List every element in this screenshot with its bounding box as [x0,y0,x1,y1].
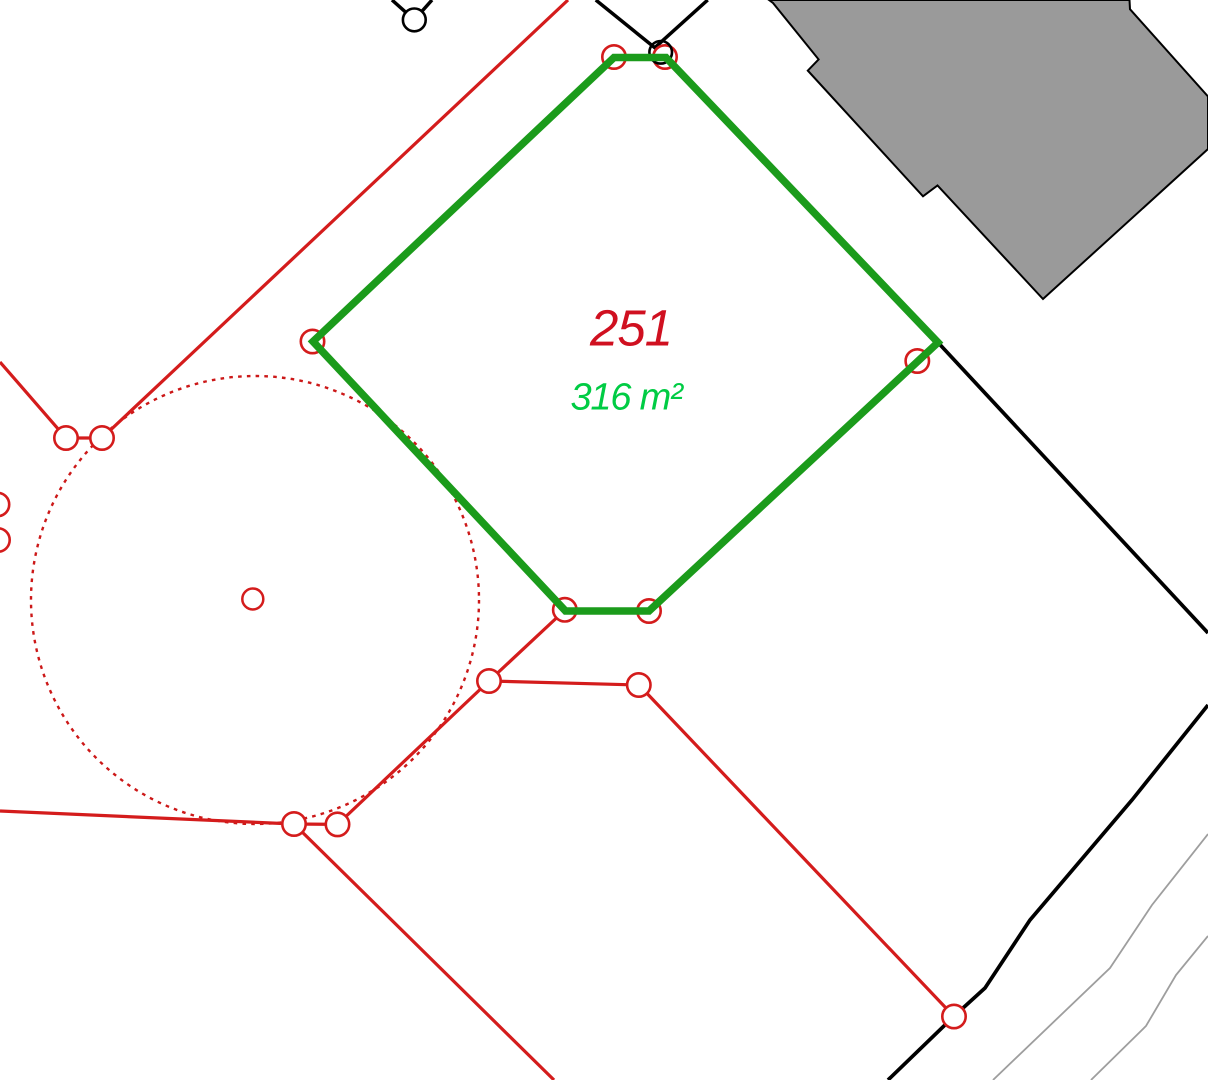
svg-text:316 m²: 316 m² [570,377,684,419]
svg-text:251: 251 [589,300,672,357]
